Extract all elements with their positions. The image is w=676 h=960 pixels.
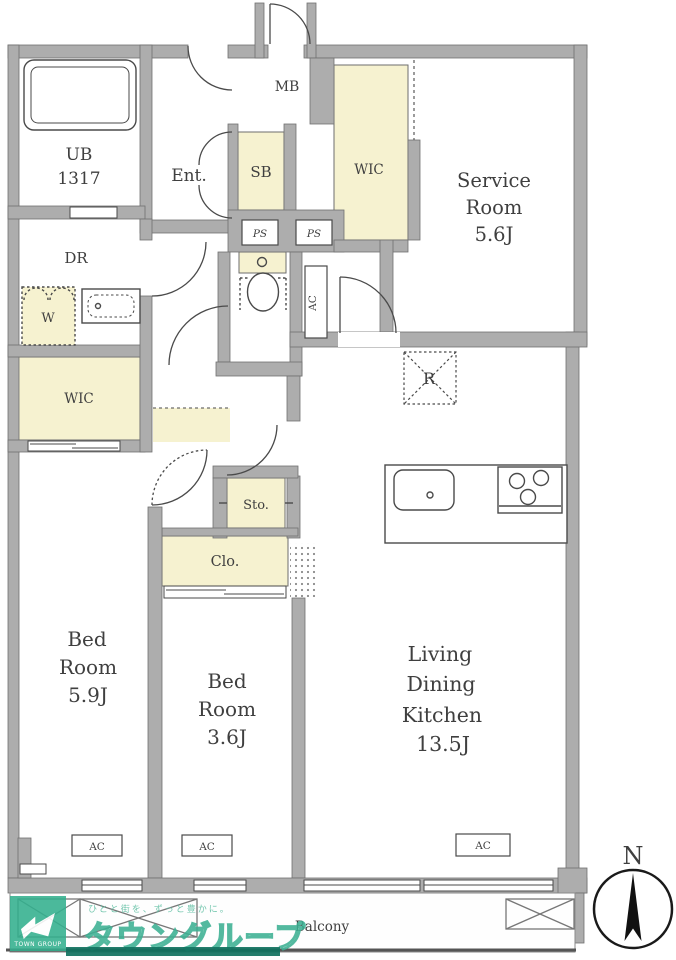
compass: N <box>594 842 672 948</box>
vanity-sink <box>82 289 140 323</box>
town-group-logo: TOWN GROUP <box>10 896 66 951</box>
wic-upper-label: WIC <box>354 162 384 178</box>
bedroom2-label: Room <box>198 697 256 721</box>
bedroom1-label: Bed <box>67 627 107 651</box>
shoe-box-label: SB <box>250 163 271 181</box>
wall <box>287 376 300 421</box>
wall <box>574 45 587 345</box>
floor-plan-drawing: UB 1317 Ent. MB SB WIC Service Room 5.6J… <box>0 0 676 960</box>
wall <box>290 252 302 376</box>
ac-label: AC <box>88 841 105 853</box>
wall <box>228 124 238 220</box>
refrigerator-label: R <box>423 369 436 388</box>
entrance-label: Ent. <box>171 166 207 186</box>
bedroom1-size: 5.9J <box>68 683 108 707</box>
closet-label: Clo. <box>211 554 240 570</box>
wall <box>566 332 579 878</box>
wic-sliding-door <box>28 441 120 451</box>
hatch-area <box>290 543 318 597</box>
meter-box-label: MB <box>275 79 300 95</box>
wall <box>162 528 298 536</box>
bedroom1-door-dashed <box>152 450 207 505</box>
wic-left-label: WIC <box>64 391 94 407</box>
kitchen-counter <box>385 465 567 543</box>
wall <box>140 296 152 452</box>
wall <box>290 332 587 347</box>
wall <box>408 140 420 240</box>
window <box>20 864 46 874</box>
bath-door <box>70 207 117 218</box>
entrance-closet-door <box>199 185 232 218</box>
entrance-closet-door <box>199 132 232 165</box>
wall <box>292 598 305 878</box>
wall <box>255 3 264 58</box>
ac-label: AC <box>474 840 491 852</box>
service-room-size: 5.6J <box>475 223 514 246</box>
ps-label: PS <box>306 228 321 240</box>
wall <box>140 220 238 233</box>
ldk-label: Living <box>408 642 473 666</box>
wall <box>310 58 334 124</box>
ldk-size: 13.5J <box>416 732 470 756</box>
ldk-label: Dining <box>406 672 475 696</box>
floor-plan: UB 1317 Ent. MB SB WIC Service Room 5.6J… <box>0 0 676 960</box>
wall <box>213 466 298 478</box>
compass-north-label: N <box>623 842 644 870</box>
bedroom1-door <box>152 450 207 505</box>
wall <box>558 868 587 893</box>
wall <box>304 45 587 58</box>
storage-label: Sto. <box>243 498 269 513</box>
bedroom2-label: Bed <box>207 669 247 693</box>
service-room-label: Service <box>457 169 531 192</box>
wall <box>8 45 19 878</box>
hall-closet-area <box>153 408 230 442</box>
service-room-label: Room <box>466 196 523 219</box>
wall <box>216 362 302 376</box>
ub-label: UB <box>66 145 93 165</box>
town-group-logo-icon <box>21 913 55 939</box>
wall <box>334 240 408 252</box>
bathtub <box>24 60 136 130</box>
wall <box>284 124 296 220</box>
wall <box>140 45 152 220</box>
bedroom2-size: 3.6J <box>207 725 247 749</box>
ldk-label: Kitchen <box>402 703 482 727</box>
wall <box>8 45 188 58</box>
ub-size: 1317 <box>57 169 100 189</box>
town-group-logo-text: TOWN GROUP <box>14 941 61 951</box>
entrance-door <box>188 46 232 90</box>
wall <box>148 507 162 878</box>
watermark-bar <box>66 947 280 956</box>
wall <box>380 240 393 332</box>
ps-label: PS <box>252 228 267 240</box>
wic-upper-area <box>334 65 408 240</box>
ac-service-label: AC <box>307 295 319 312</box>
bedroom1-label: Room <box>59 655 117 679</box>
wall <box>140 219 152 240</box>
closet-sliding-door <box>164 586 286 598</box>
ac-label: AC <box>198 841 215 853</box>
washroom-door <box>152 242 206 296</box>
toilet-tank <box>239 252 286 273</box>
dressing-room-label: DR <box>64 249 88 267</box>
washer-label: W <box>41 311 55 326</box>
wall <box>8 345 145 357</box>
service-door-gap <box>338 332 400 347</box>
meter-box-door <box>270 4 310 44</box>
